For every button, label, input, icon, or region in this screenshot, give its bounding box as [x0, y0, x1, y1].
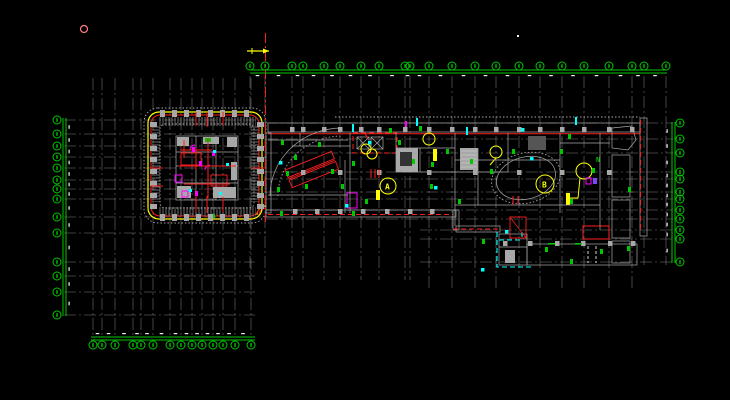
tower-column [257, 122, 264, 127]
magenta-fixture [192, 147, 195, 152]
tower-column [160, 214, 165, 221]
plant-marker [568, 134, 571, 139]
column [403, 127, 408, 132]
tower-detail [150, 110, 264, 221]
tower-column [257, 134, 264, 139]
dim-text-mark [69, 161, 70, 165]
balloon-icon [367, 149, 377, 159]
column [528, 241, 533, 246]
stair-well-1 [400, 152, 412, 166]
grid-bubble-label [169, 343, 170, 347]
column [301, 170, 306, 175]
grid-bubble-label [679, 260, 680, 264]
grid-bubble-label [679, 237, 680, 241]
dim-text-mark [368, 75, 372, 76]
column [608, 241, 613, 246]
column [494, 127, 499, 132]
tower-column [257, 193, 264, 198]
tower-column [150, 181, 157, 186]
loading-dock [497, 217, 637, 267]
magenta-fixture [199, 161, 202, 166]
dim-text-mark [160, 333, 164, 334]
cyan-marker [481, 268, 485, 272]
dim-text-mark [69, 172, 70, 176]
grid-bubble-label [608, 64, 609, 68]
dim-text-mark [549, 75, 553, 76]
grid-bubble-label [378, 64, 379, 68]
column [322, 127, 327, 132]
dim-text-mark [571, 75, 575, 76]
plant-marker [430, 184, 433, 189]
column [361, 209, 366, 214]
grid-bubble-label [222, 343, 223, 347]
column [427, 127, 432, 132]
tower-column [160, 110, 165, 117]
dock-red-room [583, 226, 609, 239]
lobby-arc-inner [278, 136, 342, 196]
column [517, 170, 522, 175]
column [293, 209, 298, 214]
tower-column [244, 214, 249, 221]
column [607, 170, 612, 175]
grid-bubble-label [56, 290, 57, 294]
tower-column [244, 110, 249, 117]
dim-text-mark [667, 174, 668, 178]
column [430, 209, 435, 214]
dim-text-mark [241, 333, 245, 334]
dim-text-mark [619, 75, 623, 76]
tower-column [172, 214, 177, 221]
tower-column [208, 110, 213, 117]
green-dash [548, 243, 555, 245]
tower-column [220, 214, 225, 221]
grid-bubble-label [92, 343, 93, 347]
balloon-flag [433, 149, 437, 161]
dim-text-mark [390, 75, 394, 76]
grid-bubble-label [451, 64, 452, 68]
dim-text-mark [330, 75, 334, 76]
dim-text-mark [595, 75, 599, 76]
cyan-marker [279, 161, 283, 165]
grid-bubble-label [518, 64, 519, 68]
column [503, 241, 508, 246]
grid-bubble-label [631, 64, 632, 68]
tower-column [257, 157, 264, 162]
plant-marker [570, 199, 573, 204]
column [338, 170, 343, 175]
dim-text-mark [667, 144, 668, 148]
grid-bubble-label [291, 64, 292, 68]
grid-bubble-label [56, 260, 57, 264]
cyan-marker [368, 141, 372, 145]
dim-text-mark [69, 183, 70, 187]
plant-marker [389, 128, 392, 133]
purple-fixture [593, 178, 597, 184]
plant-marker [280, 211, 283, 216]
plant-marker [281, 140, 284, 145]
tower-column [184, 110, 189, 117]
grid-bubble-label [234, 343, 235, 347]
dim-text-mark [135, 333, 139, 334]
plant-marker [431, 162, 434, 167]
tower-column [257, 146, 264, 151]
dim-text-mark [636, 75, 640, 76]
reference-circle-icon [81, 26, 88, 33]
escalator-divider [289, 160, 335, 179]
grid-bubble-label [212, 343, 213, 347]
dim-text-mark [122, 333, 126, 334]
grid-bubble-label [249, 64, 250, 68]
grid-bubble-label [360, 64, 361, 68]
column [517, 127, 522, 132]
column [377, 127, 382, 132]
grid-bubble-label [302, 64, 303, 68]
tower-column [150, 204, 157, 209]
balloon-flag [376, 190, 380, 200]
dim-text-mark [484, 75, 488, 76]
grid-bubble-label [679, 151, 680, 155]
tower-column [150, 193, 157, 198]
plant-marker [627, 246, 630, 251]
grid-bubble-label [495, 64, 496, 68]
cad-viewport[interactable]: A B N [0, 0, 730, 400]
magenta-fixture [195, 191, 198, 196]
grid-bubble-label [428, 64, 429, 68]
column [450, 127, 455, 132]
plant-marker [305, 184, 308, 189]
core-block [177, 186, 191, 198]
grid-bubble-label [56, 274, 57, 278]
column [560, 170, 565, 175]
grid-bubble-label [56, 132, 57, 136]
grid-bubble-label [191, 343, 192, 347]
column [630, 127, 635, 132]
plant-marker [570, 259, 573, 264]
dim-text-mark [667, 249, 668, 253]
grid-bubble-label [409, 64, 410, 68]
dim-text-mark [69, 150, 70, 154]
dock-block [505, 250, 515, 263]
facade-left [266, 133, 271, 213]
oval-outer [486, 145, 567, 211]
plant-marker [600, 249, 603, 254]
plant-marker [412, 159, 415, 164]
plant-marker [458, 199, 461, 204]
dim-text-mark [69, 282, 70, 286]
core-block [213, 187, 236, 198]
dock-white-joints [588, 246, 596, 263]
dim-text-mark [277, 75, 281, 76]
column [555, 241, 560, 246]
column [427, 170, 432, 175]
core-block [177, 137, 189, 146]
grid-bubble-label [474, 64, 475, 68]
cyan-fixture [189, 189, 192, 192]
dim-text-mark [185, 333, 189, 334]
cyan-riser [575, 117, 577, 125]
cyan-riser [466, 127, 468, 135]
facade-right [640, 118, 647, 236]
dim-text-mark [462, 75, 466, 76]
tower-column [232, 110, 237, 117]
tower-column [150, 169, 157, 174]
dim-text-mark [653, 75, 657, 76]
plant-marker [352, 211, 355, 216]
grid-bubble-label [56, 144, 57, 148]
grid-bubble-label [561, 64, 562, 68]
tower-column [196, 110, 201, 117]
column [385, 209, 390, 214]
dim-text-mark [349, 75, 353, 76]
dim-text-mark [667, 213, 668, 217]
plant-marker [490, 169, 493, 174]
dim-text-mark [69, 138, 70, 142]
plant-marker [318, 142, 321, 147]
tower-column [172, 110, 177, 117]
dim-text-mark [69, 246, 70, 250]
plant-marker [365, 199, 368, 204]
cyan-fixture [226, 163, 229, 166]
tower-column [257, 204, 264, 209]
plant-marker [294, 155, 297, 160]
grid-bubble-label [56, 197, 57, 201]
dim-text-mark [69, 125, 70, 129]
tower-plan [144, 108, 266, 223]
red-detail [365, 134, 368, 138]
dim-text-mark [667, 161, 668, 165]
grid-bubble-label [679, 190, 680, 194]
tower-column [150, 134, 157, 139]
cyan-marker [505, 230, 509, 234]
dim-text-mark [667, 129, 668, 133]
grid-bubble-label [679, 170, 680, 174]
grid-bubble-label [56, 187, 57, 191]
grid-bubble-label [250, 343, 251, 347]
grid-bubble-label [679, 208, 680, 212]
tower-column [150, 157, 157, 162]
grid-bubble-label [679, 228, 680, 232]
tower-column [184, 214, 189, 221]
dim-text-mark [174, 333, 178, 334]
grid-bubble-label [114, 343, 115, 347]
dim-text-mark [69, 206, 70, 210]
cyan-fixture [219, 192, 222, 195]
grid-bubble-label [679, 217, 680, 221]
dim-text-mark [667, 223, 668, 227]
oval-hatched [492, 150, 561, 206]
grid-bubble-label [56, 155, 57, 159]
dim-text-mark [145, 333, 149, 334]
core-block [231, 162, 237, 180]
dim-text-mark [256, 75, 260, 76]
dim-text-mark [206, 333, 210, 334]
dim-text-mark [667, 233, 668, 237]
cyan-marker [345, 204, 349, 208]
oval-feature-stair [486, 145, 567, 211]
grid-bubble-label [583, 64, 584, 68]
plant-marker [592, 168, 595, 173]
balloon-leader [490, 158, 496, 165]
column [631, 241, 636, 246]
grid-bubble-label [56, 166, 57, 170]
plant-marker [419, 126, 422, 131]
dim-text-mark [667, 184, 668, 188]
plant-marker [482, 239, 485, 244]
dim-text-mark [96, 333, 100, 334]
stray-point [517, 35, 519, 37]
plant-marker [512, 149, 515, 154]
dim-text-mark [506, 75, 510, 76]
dim-text-mark [69, 302, 70, 306]
room-label-n: N [596, 156, 600, 164]
grid-bubble-label [132, 343, 133, 347]
red-shaft-diag [510, 217, 526, 238]
dim-text-mark [312, 75, 316, 76]
dim-text-mark [107, 333, 111, 334]
plant-marker [545, 247, 548, 252]
grid-bubble-label [679, 197, 680, 201]
column [290, 127, 295, 132]
shear-wall-1 [612, 155, 630, 197]
green-dash [575, 243, 582, 245]
balloon-b-label: B [542, 181, 547, 190]
plant-marker [331, 169, 334, 174]
grid-bubble-label [323, 64, 324, 68]
tower-column [196, 214, 201, 221]
core-block [227, 137, 237, 147]
column [582, 127, 587, 132]
plant-marker [286, 171, 289, 176]
plant-marker [341, 184, 344, 189]
grid-bubble-label [56, 313, 57, 317]
grid-bubble-label [56, 118, 57, 122]
grid-bubble-label [152, 343, 153, 347]
grid-bubble-label [339, 64, 340, 68]
grid-bubble-label [264, 64, 265, 68]
column [473, 170, 478, 175]
plant-marker [628, 187, 631, 192]
grid-bubble-label [665, 64, 666, 68]
plant-marker [560, 149, 563, 154]
grid-bubble-label [679, 121, 680, 125]
tower-column [208, 214, 213, 221]
grid-bubble-label [679, 137, 680, 141]
grid-bubble-label [404, 64, 405, 68]
dim-text-mark [439, 75, 443, 76]
dim-text-mark [667, 203, 668, 207]
dim-text-mark [69, 223, 70, 227]
column [338, 209, 343, 214]
grid-bubble-label [539, 64, 540, 68]
grid-bubble-label [180, 343, 181, 347]
plant-marker [277, 187, 280, 192]
cad-canvas[interactable]: A B N [0, 0, 730, 400]
grid-bubble-label [101, 343, 102, 347]
dim-text-mark [667, 194, 668, 198]
cyan-riser [416, 118, 418, 126]
column [538, 127, 543, 132]
column [359, 127, 364, 132]
balloon-flag [566, 193, 570, 205]
tower-column [150, 146, 157, 151]
grid-bubble-label [643, 64, 644, 68]
tower-column [150, 122, 157, 127]
cyan-marker [530, 157, 534, 161]
dim-text-mark [406, 75, 410, 76]
column [607, 127, 612, 132]
column [560, 127, 565, 132]
balloon-a-label: A [385, 183, 390, 192]
cyan-riser [352, 124, 354, 132]
dark-room-block [528, 136, 546, 150]
cyan-marker [434, 186, 438, 190]
grid-bubble-label [140, 343, 141, 347]
column [315, 209, 320, 214]
column [301, 127, 306, 132]
plant-marker [446, 149, 449, 154]
dim-text-mark [69, 192, 70, 196]
grid-bubble-label [56, 178, 57, 182]
tower-column [232, 214, 237, 221]
tower-column [257, 169, 264, 174]
grid-bubble-label [679, 177, 680, 181]
dim-text-mark [216, 333, 220, 334]
column [408, 209, 413, 214]
cyan-marker [521, 128, 525, 132]
column [473, 127, 478, 132]
dim-text-mark [227, 333, 231, 334]
cyan-fixture [213, 150, 216, 153]
dim-text-mark [296, 75, 300, 76]
tower-column [257, 181, 264, 186]
dim-text-mark [195, 333, 199, 334]
plant-marker [352, 161, 355, 166]
column [338, 127, 343, 132]
dim-text-mark [528, 75, 532, 76]
plant-marker [398, 140, 401, 145]
plant-marker [470, 159, 473, 164]
dim-text-mark [69, 267, 70, 271]
grid-bubble-label [56, 215, 57, 219]
dim-text-mark [418, 75, 422, 76]
grid-bubble-label [201, 343, 202, 347]
grid-bubble-label [56, 231, 57, 235]
